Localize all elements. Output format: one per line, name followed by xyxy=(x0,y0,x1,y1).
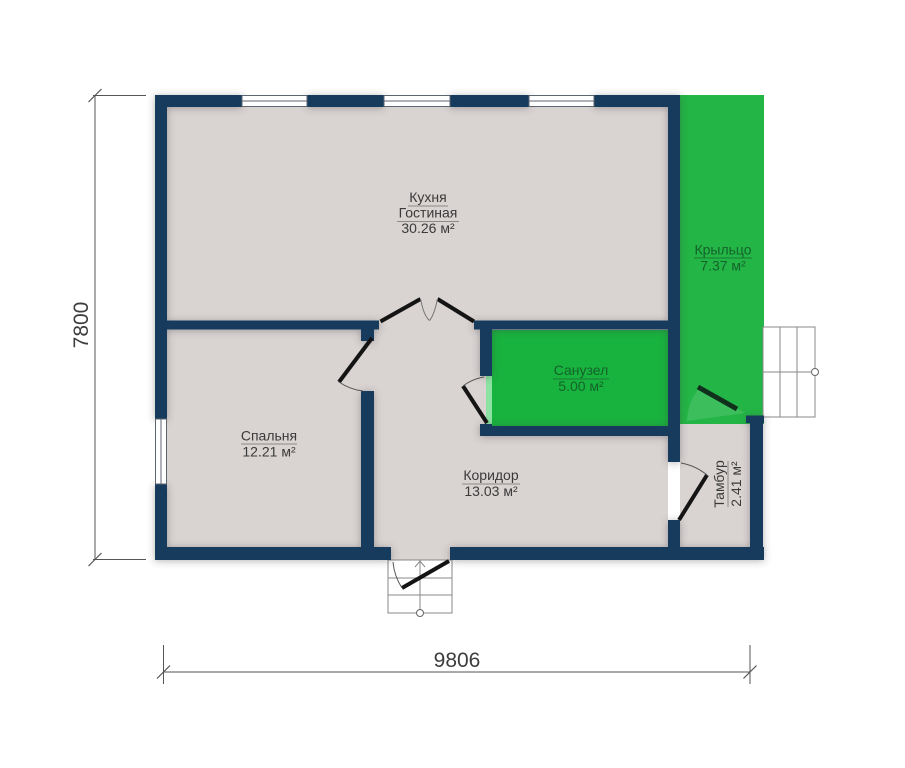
svg-text:Гостиная: Гостиная xyxy=(399,205,458,221)
svg-text:Коридор: Коридор xyxy=(463,467,519,483)
svg-text:Спальня: Спальня xyxy=(241,428,297,444)
svg-text:12.21 м²: 12.21 м² xyxy=(242,444,296,460)
svg-text:7800: 7800 xyxy=(70,302,93,349)
svg-text:5.00 м²: 5.00 м² xyxy=(558,378,604,394)
svg-text:2.41 м²: 2.41 м² xyxy=(728,461,744,507)
svg-text:7.37 м²: 7.37 м² xyxy=(700,258,746,274)
svg-text:Крыльцо: Крыльцо xyxy=(694,242,751,258)
svg-text:Санузел: Санузел xyxy=(554,362,609,378)
svg-text:13.03 м²: 13.03 м² xyxy=(464,483,518,499)
svg-text:Кухня: Кухня xyxy=(409,189,446,205)
svg-text:9806: 9806 xyxy=(434,649,481,672)
svg-text:30.26 м²: 30.26 м² xyxy=(401,220,455,236)
svg-text:Тамбур: Тамбур xyxy=(711,460,727,508)
